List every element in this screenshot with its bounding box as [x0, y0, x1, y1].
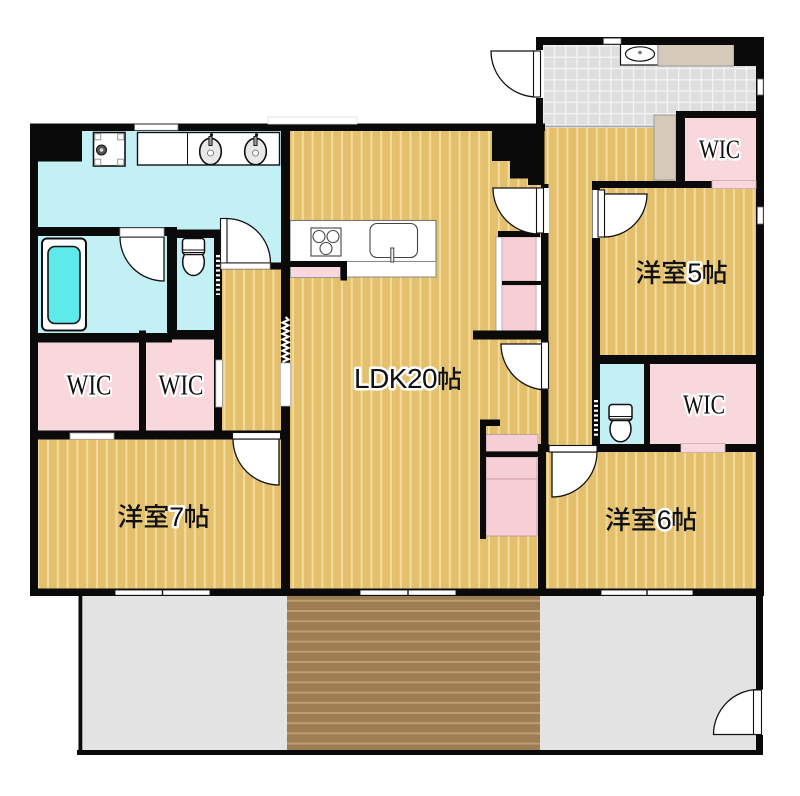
svg-text:5: 5 — [687, 258, 702, 288]
svg-text:LDK20: LDK20 — [354, 363, 437, 394]
svg-text:7: 7 — [169, 502, 184, 532]
svg-text:6: 6 — [657, 505, 672, 535]
svg-text:WIC: WIC — [699, 135, 740, 164]
svg-text:WIC: WIC — [67, 370, 112, 402]
svg-text:WIC: WIC — [683, 389, 725, 419]
svg-text:WIC: WIC — [159, 370, 204, 402]
